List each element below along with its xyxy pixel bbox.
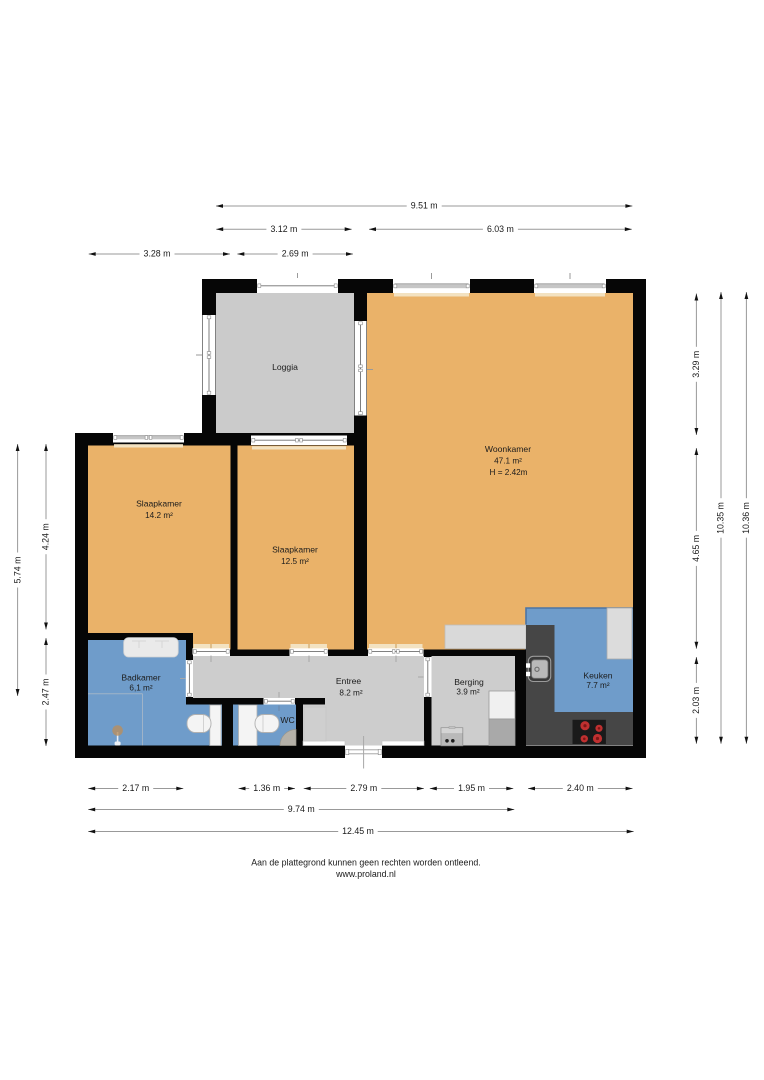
svg-text:WC: WC bbox=[280, 715, 294, 725]
svg-text:3.12 m: 3.12 m bbox=[270, 224, 297, 234]
svg-text:9.51 m: 9.51 m bbox=[411, 201, 438, 211]
svg-text:2.17 m: 2.17 m bbox=[122, 783, 149, 793]
svg-text:3.9 m²: 3.9 m² bbox=[456, 687, 479, 696]
svg-text:1.36 m: 1.36 m bbox=[253, 783, 280, 793]
svg-text:7.7 m²: 7.7 m² bbox=[586, 681, 609, 690]
svg-text:10.36 m: 10.36 m bbox=[741, 502, 751, 534]
svg-text:47.1 m²: 47.1 m² bbox=[494, 456, 522, 465]
svg-text:Badkamer: Badkamer bbox=[121, 673, 160, 683]
svg-text:Keuken: Keuken bbox=[583, 671, 612, 681]
svg-text:1.95 m: 1.95 m bbox=[458, 783, 485, 793]
svg-text:3.29 m: 3.29 m bbox=[691, 351, 701, 378]
svg-text:12.5 m²: 12.5 m² bbox=[281, 557, 309, 566]
svg-text:Slaapkamer: Slaapkamer bbox=[272, 544, 318, 554]
svg-text:2.47 m: 2.47 m bbox=[41, 679, 51, 706]
svg-text:Berging: Berging bbox=[454, 677, 484, 687]
svg-text:Woonkamer: Woonkamer bbox=[485, 444, 531, 454]
svg-text:2.69 m: 2.69 m bbox=[282, 249, 309, 259]
svg-text:4.24 m: 4.24 m bbox=[41, 523, 51, 550]
svg-text:6.03 m: 6.03 m bbox=[487, 224, 514, 234]
svg-text:5.74 m: 5.74 m bbox=[12, 557, 22, 584]
svg-text:H = 2.42m: H = 2.42m bbox=[490, 468, 528, 477]
svg-text:10.35 m: 10.35 m bbox=[716, 502, 726, 534]
svg-text:Entree: Entree bbox=[336, 676, 362, 686]
svg-text:2.79 m: 2.79 m bbox=[350, 783, 377, 793]
svg-text:Aan de plattegrond kunnen geen: Aan de plattegrond kunnen geen rechten w… bbox=[251, 857, 480, 867]
svg-text:12.45 m: 12.45 m bbox=[342, 826, 374, 836]
svg-text:14.2 m²: 14.2 m² bbox=[145, 511, 173, 520]
svg-text:Loggia: Loggia bbox=[272, 362, 298, 372]
svg-text:www.proland.nl: www.proland.nl bbox=[335, 869, 396, 879]
svg-text:2.03 m: 2.03 m bbox=[691, 687, 701, 714]
svg-text:8.2 m²: 8.2 m² bbox=[339, 688, 362, 697]
svg-text:2.40 m: 2.40 m bbox=[567, 783, 594, 793]
svg-text:4.65 m: 4.65 m bbox=[691, 535, 701, 562]
svg-text:3.28 m: 3.28 m bbox=[144, 249, 171, 259]
svg-text:6,1 m²: 6,1 m² bbox=[129, 683, 152, 692]
svg-text:9.74 m: 9.74 m bbox=[288, 804, 315, 814]
svg-text:Slaapkamer: Slaapkamer bbox=[136, 499, 182, 509]
